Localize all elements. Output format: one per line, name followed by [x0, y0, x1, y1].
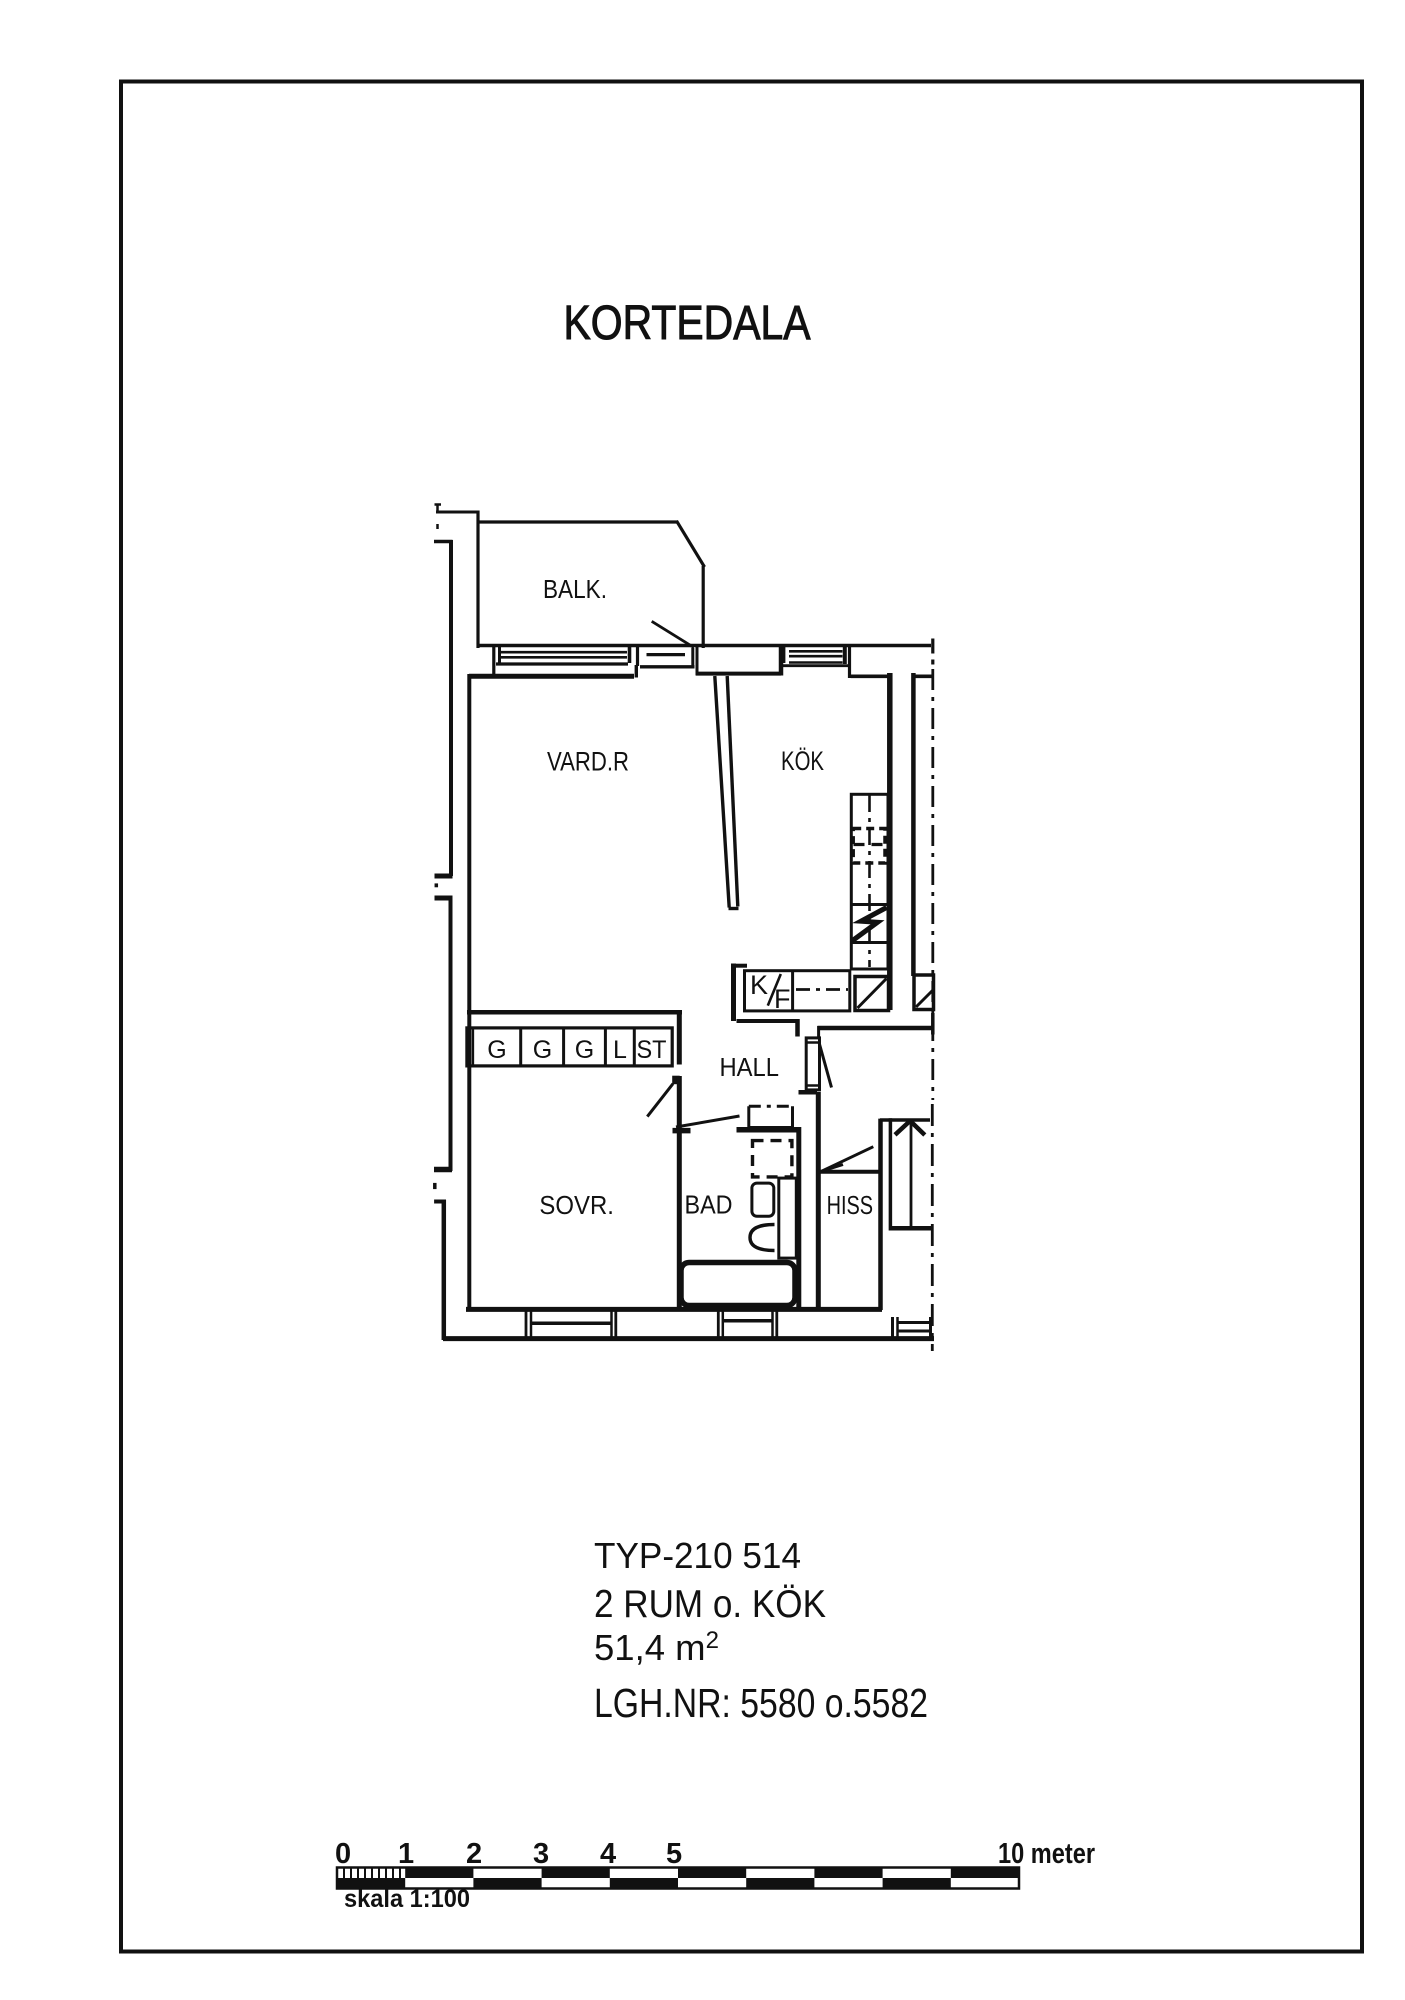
svg-text:LGH.NR: 5580 o.5582: LGH.NR: 5580 o.5582	[594, 1680, 928, 1726]
svg-text:skala 1:100: skala 1:100	[344, 1885, 470, 1913]
svg-text:BALK.: BALK.	[543, 574, 607, 604]
svg-text:51,4 m2: 51,4 m2	[594, 1627, 719, 1668]
svg-text:10 meter: 10 meter	[998, 1838, 1095, 1870]
svg-text:5: 5	[666, 1838, 682, 1870]
svg-text:KÖK: KÖK	[781, 746, 824, 776]
svg-text:G: G	[533, 1036, 552, 1064]
svg-text:HISS: HISS	[827, 1190, 874, 1220]
svg-text:1: 1	[398, 1838, 414, 1870]
svg-text:TYP-210 514: TYP-210 514	[594, 1535, 801, 1576]
svg-text:3: 3	[533, 1838, 549, 1870]
svg-text:ST: ST	[637, 1036, 667, 1064]
svg-text:2 RUM o. KÖK: 2 RUM o. KÖK	[594, 1583, 826, 1626]
svg-text:F: F	[774, 984, 791, 1014]
svg-text:2: 2	[466, 1838, 482, 1870]
svg-text:G: G	[575, 1036, 594, 1064]
svg-text:K: K	[750, 970, 768, 1000]
svg-text:KORTEDALA: KORTEDALA	[564, 297, 811, 350]
svg-text:SOVR.: SOVR.	[539, 1190, 614, 1220]
svg-text:BAD: BAD	[685, 1190, 733, 1220]
svg-text:HALL: HALL	[720, 1052, 780, 1082]
svg-text:VARD.R: VARD.R	[547, 747, 629, 777]
svg-text:0: 0	[335, 1838, 351, 1870]
svg-text:G: G	[487, 1036, 506, 1064]
svg-text:4: 4	[600, 1838, 616, 1870]
svg-text:L: L	[613, 1036, 627, 1064]
